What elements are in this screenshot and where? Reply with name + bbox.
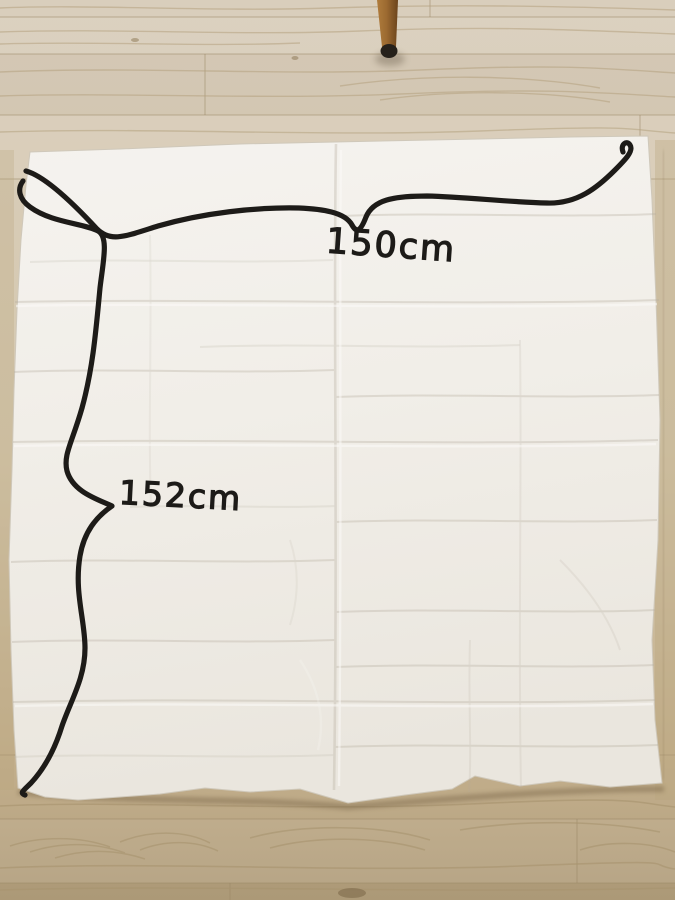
fabric-shadow-right xyxy=(663,150,664,780)
wood-speck xyxy=(292,56,299,60)
chair-leg-tip xyxy=(381,44,398,58)
wood-knot xyxy=(338,888,366,898)
wood-speck xyxy=(131,38,139,42)
height-measurement-label: 152cm xyxy=(118,473,243,518)
photo: 150cm 152cm xyxy=(0,0,675,900)
scene-svg xyxy=(0,0,675,900)
